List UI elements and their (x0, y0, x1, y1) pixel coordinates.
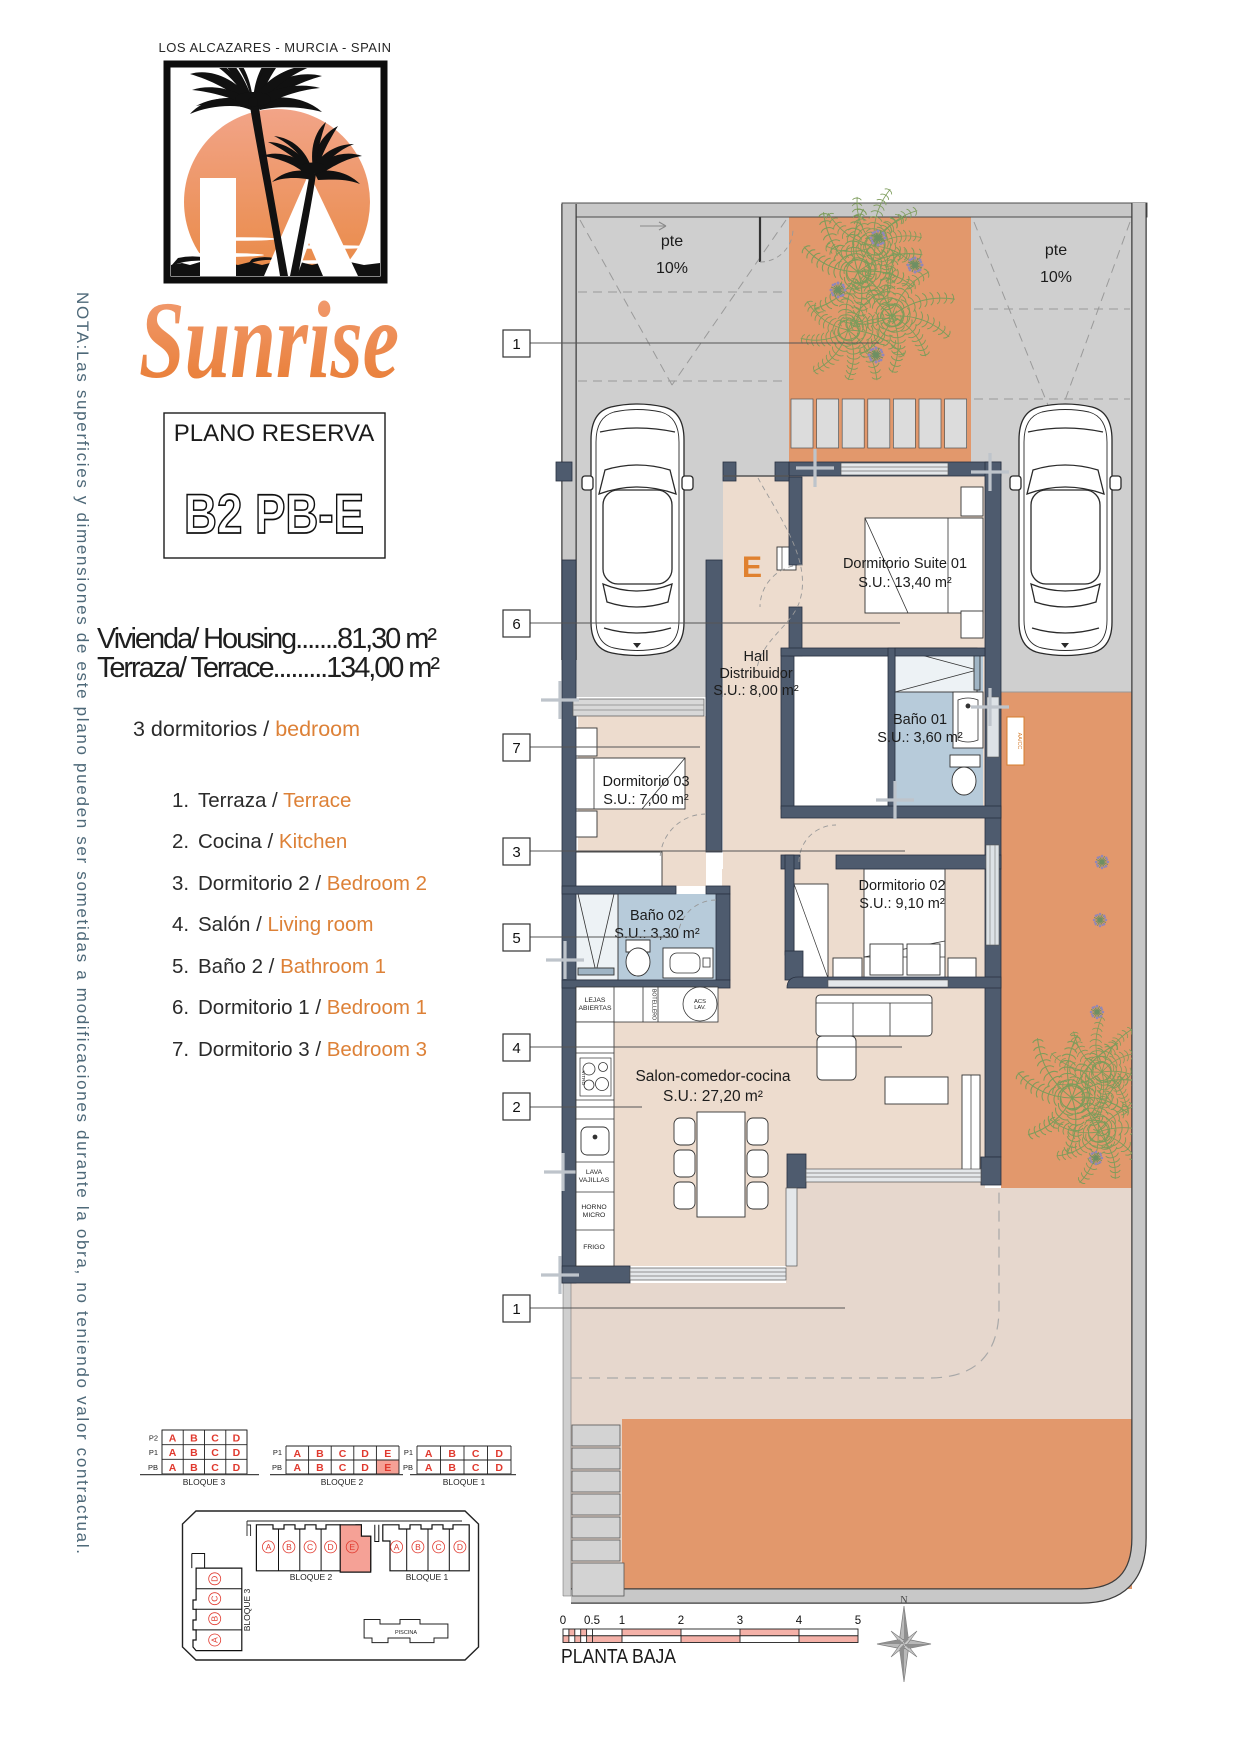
svg-text:3: 3 (737, 1615, 743, 1627)
svg-text:BLOQUE 3: BLOQUE 3 (242, 1588, 252, 1631)
svg-text:B: B (448, 1462, 456, 1474)
svg-text:Sunrise: Sunrise (139, 279, 399, 401)
svg-text:Dormitorio Suite 01: Dormitorio Suite 01 (843, 556, 967, 572)
svg-text:A: A (425, 1462, 433, 1474)
svg-text:MICRO: MICRO (583, 1212, 606, 1219)
svg-text:C: C (339, 1448, 347, 1460)
svg-text:N: N (900, 1595, 907, 1606)
svg-text:B: B (415, 1542, 421, 1552)
svg-text:3.: 3. (172, 872, 189, 895)
svg-text:Baño 01: Baño 01 (893, 712, 947, 728)
svg-text:LAVA: LAVA (586, 1169, 603, 1176)
svg-text:Vivienda/ Housing.......81,30: Vivienda/ Housing.......81,30 m² (97, 623, 437, 655)
svg-text:3: 3 (512, 844, 520, 861)
svg-text:Salón / Living room: Salón / Living room (198, 913, 374, 936)
svg-text:Hall: Hall (744, 649, 769, 665)
svg-text:Baño 02: Baño 02 (630, 908, 684, 924)
svg-text:1: 1 (512, 1301, 520, 1318)
svg-text:D: D (495, 1462, 503, 1474)
svg-text:D: D (233, 1447, 241, 1459)
svg-text:E: E (349, 1542, 355, 1552)
svg-text:S.U.: 7,00 m²: S.U.: 7,00 m² (603, 792, 689, 808)
svg-text:PLANTA BAJA: PLANTA BAJA (561, 1646, 677, 1668)
svg-text:Dormitorio 2 / Bedroom 2: Dormitorio 2 / Bedroom 2 (198, 872, 427, 895)
svg-text:5.: 5. (172, 955, 189, 978)
svg-text:B: B (316, 1448, 324, 1460)
svg-text:S.U.: 9,10 m²: S.U.: 9,10 m² (859, 896, 945, 912)
svg-text:B: B (190, 1433, 198, 1445)
svg-text:7: 7 (512, 740, 520, 757)
svg-text:LOS ALCAZARES - MURCIA - SPAIN: LOS ALCAZARES - MURCIA - SPAIN (159, 40, 392, 55)
svg-text:B: B (190, 1462, 198, 1474)
svg-text:NOTA:Las superficies y dimensi: NOTA:Las superficies y dimensiones de es… (73, 292, 92, 1554)
svg-text:BLOQUE 2: BLOQUE 2 (321, 1477, 364, 1487)
svg-text:0: 0 (560, 1615, 566, 1627)
svg-text:D: D (457, 1542, 463, 1552)
svg-text:BLOQUE 3: BLOQUE 3 (183, 1477, 226, 1487)
svg-text:C: C (472, 1462, 480, 1474)
svg-text:E: E (384, 1462, 391, 1474)
svg-text:Terraza / Terrace: Terraza / Terrace (198, 789, 351, 812)
svg-text:AA/CC: AA/CC (1016, 733, 1022, 750)
svg-text:B: B (286, 1542, 292, 1552)
svg-text:C: C (210, 1596, 220, 1602)
svg-text:D: D (233, 1462, 241, 1474)
svg-text:1: 1 (619, 1615, 625, 1627)
svg-text:C: C (211, 1462, 219, 1474)
svg-text:PISCINA: PISCINA (395, 1630, 417, 1636)
svg-text:2: 2 (678, 1615, 684, 1627)
svg-text:S.U.: 8,00 m²: S.U.: 8,00 m² (713, 683, 799, 699)
svg-text:C: C (472, 1448, 480, 1460)
svg-text:pte: pte (1045, 242, 1067, 259)
svg-text:4: 4 (796, 1615, 803, 1627)
svg-text:A: A (169, 1433, 177, 1445)
svg-text:PB: PB (403, 1463, 413, 1472)
svg-text:LAV.: LAV. (694, 1005, 706, 1011)
svg-text:Dormitorio 1 / Bedroom 1: Dormitorio 1 / Bedroom 1 (198, 996, 427, 1019)
svg-text:Distribuidor: Distribuidor (719, 666, 792, 682)
svg-text:B: B (448, 1448, 456, 1460)
svg-text:C: C (339, 1462, 347, 1474)
svg-text:Cocina / Kitchen: Cocina / Kitchen (198, 830, 347, 853)
svg-text:Baño 2 / Bathroom 1: Baño 2 / Bathroom 1 (198, 955, 386, 978)
svg-text:5: 5 (512, 930, 520, 947)
svg-text:PB: PB (272, 1463, 282, 1472)
svg-text:Terraza/ Terrace.........134,0: Terraza/ Terrace.........134,00 m² (97, 652, 440, 684)
svg-text:B: B (316, 1462, 324, 1474)
svg-text:A: A (425, 1448, 433, 1460)
svg-text:P1: P1 (404, 1448, 413, 1457)
svg-text:4.: 4. (172, 913, 189, 936)
svg-text:2.: 2. (172, 830, 189, 853)
svg-text:A: A (294, 1462, 302, 1474)
svg-text:D: D (361, 1462, 369, 1474)
svg-text:S.U.: 3,30 m²: S.U.: 3,30 m² (614, 926, 700, 942)
svg-text:C: C (436, 1542, 442, 1552)
svg-text:LEJAS: LEJAS (585, 997, 606, 1004)
svg-text:A: A (210, 1637, 220, 1643)
svg-text:PB: PB (148, 1463, 158, 1472)
svg-text:10%: 10% (656, 260, 688, 277)
svg-text:A: A (394, 1542, 400, 1552)
svg-text:VAJILLAS: VAJILLAS (579, 1177, 610, 1184)
svg-text:P1: P1 (149, 1448, 158, 1457)
svg-text:D: D (495, 1448, 503, 1460)
svg-text:3 dormitorios / bedroom: 3 dormitorios / bedroom (133, 717, 360, 741)
svg-text:C: C (211, 1447, 219, 1459)
svg-text:A: A (266, 1542, 272, 1552)
svg-text:VITRO: VITRO (580, 1071, 586, 1086)
svg-text:6: 6 (512, 616, 520, 633)
svg-text:C: C (307, 1542, 313, 1552)
svg-text:pte: pte (661, 233, 683, 250)
svg-text:BLOQUE 1: BLOQUE 1 (443, 1477, 486, 1487)
svg-text:E: E (384, 1448, 391, 1460)
svg-text:Dormitorio 3 / Bedroom 3: Dormitorio 3 / Bedroom 3 (198, 1038, 427, 1061)
svg-text:4: 4 (512, 1040, 520, 1057)
svg-text:C: C (211, 1433, 219, 1445)
svg-text:FRIGO: FRIGO (583, 1244, 605, 1251)
svg-text:BLOQUE 1: BLOQUE 1 (406, 1572, 449, 1582)
svg-text:A: A (169, 1447, 177, 1459)
svg-text:Salon-comedor-cocina: Salon-comedor-cocina (635, 1068, 790, 1085)
svg-text:P2: P2 (149, 1434, 158, 1443)
svg-text:7.: 7. (172, 1038, 189, 1061)
svg-text:D: D (361, 1448, 369, 1460)
svg-text:Dormitorio 03: Dormitorio 03 (602, 774, 689, 790)
svg-text:B: B (210, 1616, 220, 1622)
svg-text:1: 1 (512, 336, 520, 353)
svg-text:1.: 1. (172, 789, 189, 812)
svg-text:PLANO RESERVA: PLANO RESERVA (174, 420, 375, 447)
svg-text:6.: 6. (172, 996, 189, 1019)
svg-text:A: A (169, 1462, 177, 1474)
svg-text:S.U.: 13,40 m²: S.U.: 13,40 m² (858, 575, 952, 591)
svg-text:2: 2 (512, 1099, 520, 1116)
svg-text:B2 PB-E: B2 PB-E (184, 482, 364, 545)
svg-text:A: A (294, 1448, 302, 1460)
svg-text:BLOQUE 2: BLOQUE 2 (290, 1572, 333, 1582)
svg-text:D: D (210, 1576, 220, 1582)
svg-text:E: E (742, 551, 762, 584)
svg-text:5: 5 (855, 1615, 861, 1627)
svg-text:S.U.: 3,60 m²: S.U.: 3,60 m² (877, 730, 963, 746)
svg-text:B: B (190, 1447, 198, 1459)
svg-text:D: D (328, 1542, 334, 1552)
svg-text:Dormitorio 02: Dormitorio 02 (858, 878, 945, 894)
svg-text:BOTELLERO: BOTELLERO (651, 989, 657, 1020)
svg-text:ABIERTAS: ABIERTAS (579, 1005, 612, 1012)
svg-text:S.U.: 27,20 m²: S.U.: 27,20 m² (663, 1088, 763, 1105)
svg-text:P1: P1 (273, 1448, 282, 1457)
svg-text:0.5: 0.5 (584, 1615, 600, 1627)
svg-text:D: D (233, 1433, 241, 1445)
svg-text:10%: 10% (1040, 269, 1072, 286)
svg-text:HORNO: HORNO (581, 1204, 606, 1211)
